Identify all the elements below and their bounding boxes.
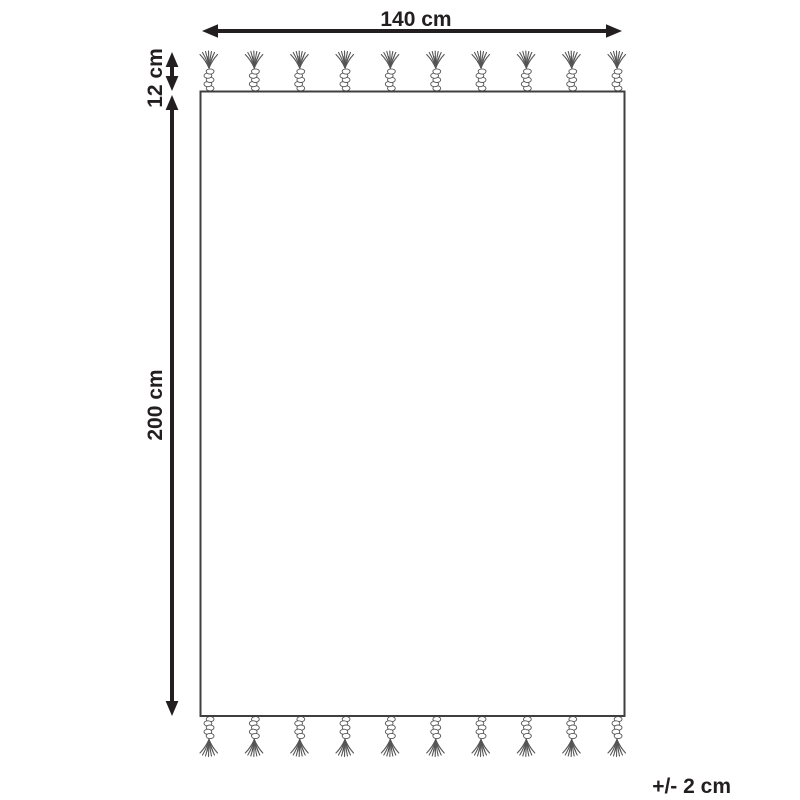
dimension-diagram-svg: 140 cm 12 cm 200 cm +/- 2 cm	[0, 0, 800, 800]
fringe-dimension-arrow	[166, 52, 179, 91]
tassels-bottom	[200, 717, 626, 757]
width-dimension-label: 140 cm	[380, 8, 451, 31]
rug-outline	[201, 92, 625, 717]
height-dimension-label: 200 cm	[144, 369, 167, 440]
product-dimension-diagram: 140 cm 12 cm 200 cm +/- 2 cm	[0, 0, 800, 800]
tolerance-label: +/- 2 cm	[652, 775, 731, 798]
fringe-dimension-label: 12 cm	[144, 48, 167, 108]
tassels-top	[200, 51, 626, 91]
height-dimension-arrow	[166, 95, 179, 716]
